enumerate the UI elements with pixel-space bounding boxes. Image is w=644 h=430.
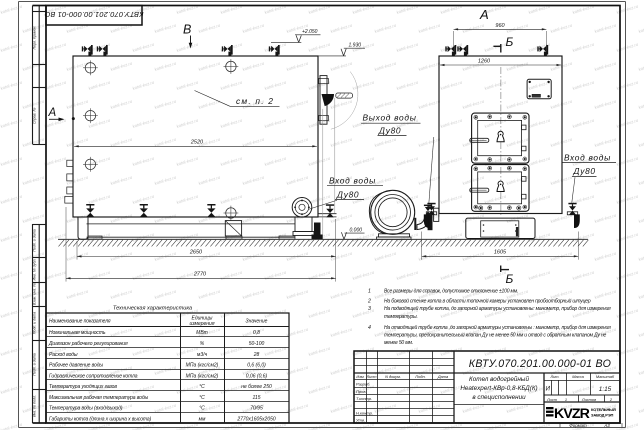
svg-text:Все размеры для справок, допус: Все размеры для справок, допустимое откл… <box>384 289 518 295</box>
svg-text:115: 115 <box>253 395 261 401</box>
svg-text:Гидравлическое сопротивление к: Гидравлическое сопротивление котла <box>49 373 138 379</box>
svg-text:Максимальная рабочая температу: Максимальная рабочая температура воды <box>49 395 149 401</box>
svg-text:Подп.: Подп. <box>415 374 425 379</box>
svg-text:Heatexpert-КВр-0,8-КБД(К): Heatexpert-КВр-0,8-КБД(К) <box>460 385 537 392</box>
svg-text:Масштаб: Масштаб <box>596 374 615 379</box>
svg-text:Н.контр.: Н.контр. <box>356 410 373 415</box>
svg-text:Изм: Изм <box>356 374 364 379</box>
svg-text:2520: 2520 <box>190 140 204 146</box>
svg-text:Лист: Лист <box>546 397 558 402</box>
svg-text:Габариты котла (длина х ширина: Габариты котла (длина х ширина х высота) <box>49 416 152 422</box>
svg-text:N докум.: N докум. <box>385 374 401 379</box>
svg-text:Рабочее давление воды: Рабочее давление воды <box>49 363 103 369</box>
svg-text:МПа (кгс/см2): МПа (кгс/см2) <box>186 373 219 379</box>
svg-text:И: И <box>546 387 551 393</box>
svg-text:На отводящей трубе котла ,до з: На отводящей трубе котла ,до запорной ар… <box>384 324 611 331</box>
svg-text:50-100: 50-100 <box>249 341 265 347</box>
svg-text:Температура воды (вход/выход): Температура воды (вход/выход) <box>49 406 123 412</box>
svg-text:Инв. № дубл.: Инв. № дубл. <box>33 258 37 280</box>
svg-text:%: % <box>200 341 205 347</box>
svg-text:3: 3 <box>368 306 371 312</box>
svg-text:Вход воды: Вход воды <box>329 176 376 186</box>
svg-text:2: 2 <box>367 299 371 305</box>
svg-text:Номинальная мощность: Номинальная мощность <box>49 330 106 336</box>
svg-text:Перв. примен.: Перв. примен. <box>33 26 37 50</box>
svg-text:Подп. и дата: Подп. и дата <box>33 229 37 252</box>
svg-text:КВТУ.070.201.00.000-01 ВО: КВТУ.070.201.00.000-01 ВО <box>44 10 143 19</box>
svg-text:Взам. инв. №: Взам. инв. № <box>33 283 37 305</box>
svg-text:МПа (кгс/см2): МПа (кгс/см2) <box>186 363 219 369</box>
svg-text:Ду80: Ду80 <box>336 190 359 200</box>
svg-text:Б: Б <box>506 272 514 286</box>
svg-text:А3: А3 <box>603 423 610 428</box>
svg-text:измерения: измерения <box>189 321 214 327</box>
svg-text:Дата: Дата <box>437 374 449 379</box>
svg-text:не более 250: не более 250 <box>241 384 272 390</box>
svg-text:2650: 2650 <box>189 250 203 256</box>
svg-text:Расход воды: Расход воды <box>49 352 78 358</box>
svg-text:Температура уходящих газов: Температура уходящих газов <box>49 384 117 390</box>
svg-text:Наименование показателя: Наименование показателя <box>49 318 111 324</box>
svg-text:70/95: 70/95 <box>250 406 263 412</box>
svg-text:ЗАВОД РЭП: ЗАВОД РЭП <box>591 413 614 418</box>
svg-text:0,6 (6,0): 0,6 (6,0) <box>247 363 266 369</box>
svg-text:Т.контр.: Т.контр. <box>356 396 372 401</box>
svg-text:KVZR: KVZR <box>554 406 590 422</box>
svg-text:Подп. и дата: Подп. и дата <box>33 353 37 376</box>
svg-text:Выход воды: Выход воды <box>363 113 417 123</box>
svg-text:А: А <box>479 7 489 22</box>
svg-text:МВт: МВт <box>196 330 208 336</box>
svg-text:м3/ч: м3/ч <box>197 352 208 358</box>
svg-text:Техническая характеристика: Техническая характеристика <box>113 305 192 311</box>
svg-text:КВТУ.070.201.00.000-01 ВО: КВТУ.070.201.00.000-01 ВО <box>469 358 611 370</box>
svg-text:1.930: 1.930 <box>349 43 362 49</box>
svg-text:Подп. и дата: Подп. и дата <box>33 312 37 335</box>
svg-text:температуры.: температуры. <box>384 314 418 320</box>
svg-text:Б: Б <box>506 35 514 49</box>
svg-text:Диапазон рабочего регулировани: Диапазон рабочего регулирования <box>48 341 128 347</box>
svg-text:°С: °С <box>199 384 205 390</box>
svg-text:1: 1 <box>368 289 371 295</box>
svg-text:Пров.: Пров. <box>356 389 367 394</box>
svg-text:мм: мм <box>199 416 206 422</box>
svg-text:°С: °С <box>199 406 205 412</box>
svg-text:Утв.: Утв. <box>356 418 365 423</box>
svg-text:температуры, предохранительный: температуры, предохранительный клапан Ду… <box>384 332 607 339</box>
svg-text:Лит.: Лит. <box>549 374 559 379</box>
svg-text:Инв. № подл.: Инв. № подл. <box>33 395 37 417</box>
svg-text:1605: 1605 <box>494 250 507 256</box>
svg-text:+2.050: +2.050 <box>302 29 318 35</box>
svg-text:28: 28 <box>253 352 260 358</box>
svg-text:Листов: Листов <box>581 397 596 402</box>
svg-text:0,8: 0,8 <box>253 330 260 336</box>
svg-text:960: 960 <box>495 23 505 29</box>
svg-text:1:15: 1:15 <box>599 386 612 393</box>
svg-text:1: 1 <box>565 397 567 402</box>
svg-text:Формат: Формат <box>569 423 587 428</box>
svg-text:2770х1605х2050: 2770х1605х2050 <box>236 416 276 422</box>
svg-text:°С: °С <box>199 395 205 401</box>
svg-text:2770: 2770 <box>193 272 207 278</box>
svg-text:Ду80: Ду80 <box>573 166 596 176</box>
svg-text:1260: 1260 <box>478 58 491 64</box>
svg-text:КОТЕЛЬНЫЙ: КОТЕЛЬНЫЙ <box>591 407 616 412</box>
svg-text:4: 4 <box>368 325 371 331</box>
svg-text:А: А <box>48 107 57 119</box>
svg-text:На подводящей трубе котла, до: На подводящей трубе котла, до запорной а… <box>384 305 611 312</box>
svg-text:в специсполнении: в специсполнении <box>472 394 526 401</box>
svg-text:Значение: Значение <box>246 318 268 324</box>
svg-text:Ду80: Ду80 <box>378 125 401 135</box>
svg-text:Котел водогрейный: Котел водогрейный <box>469 375 529 383</box>
svg-text:Масса: Масса <box>572 374 584 379</box>
svg-text:см. п. 2: см. п. 2 <box>236 96 274 106</box>
svg-text:В: В <box>183 23 191 37</box>
svg-text:Вход воды: Вход воды <box>564 152 611 162</box>
svg-text:Разраб.: Разраб. <box>356 382 370 387</box>
svg-text:На боковой стенке котла в обла: На боковой стенке котла в области топочн… <box>384 298 591 305</box>
svg-text:менее 50 мм.: менее 50 мм. <box>384 340 413 346</box>
svg-text:0.000: 0.000 <box>350 228 363 234</box>
svg-text:Справ. №: Справ. № <box>33 108 37 124</box>
svg-text:0,06 (0,6): 0,06 (0,6) <box>246 373 268 379</box>
svg-text:Лист: Лист <box>365 374 377 379</box>
